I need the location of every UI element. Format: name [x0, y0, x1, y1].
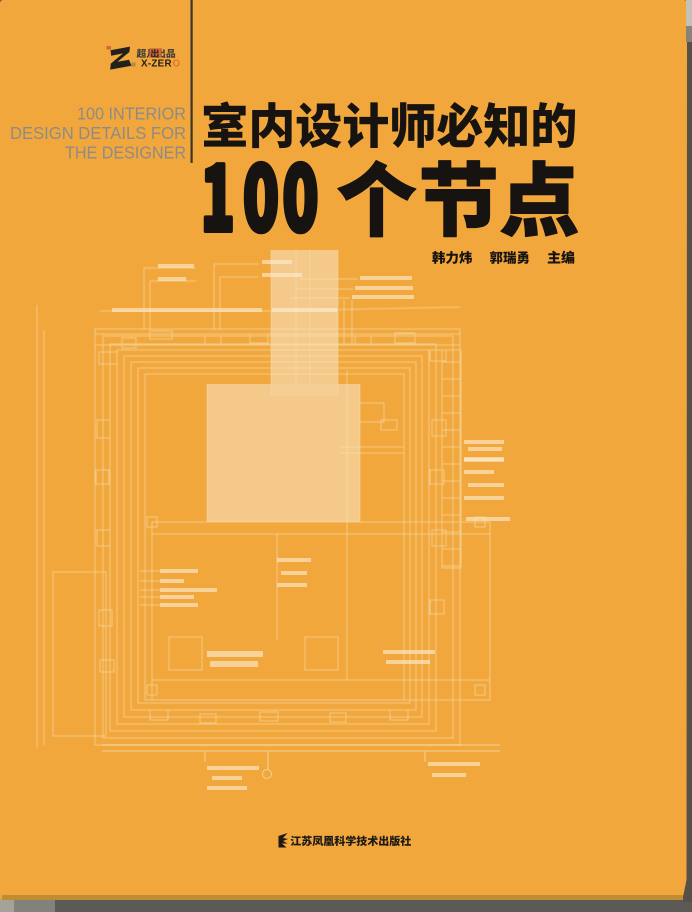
- svg-text:DESIGN DETAILS FOR: DESIGN DETAILS FOR: [10, 123, 186, 143]
- svg-text:O: O: [173, 59, 181, 70]
- svg-text:100 INTERIOR: 100 INTERIOR: [77, 104, 186, 124]
- svg-text:THE DESIGNER: THE DESIGNER: [65, 142, 186, 162]
- svg-text:X-ZER: X-ZER: [141, 59, 172, 70]
